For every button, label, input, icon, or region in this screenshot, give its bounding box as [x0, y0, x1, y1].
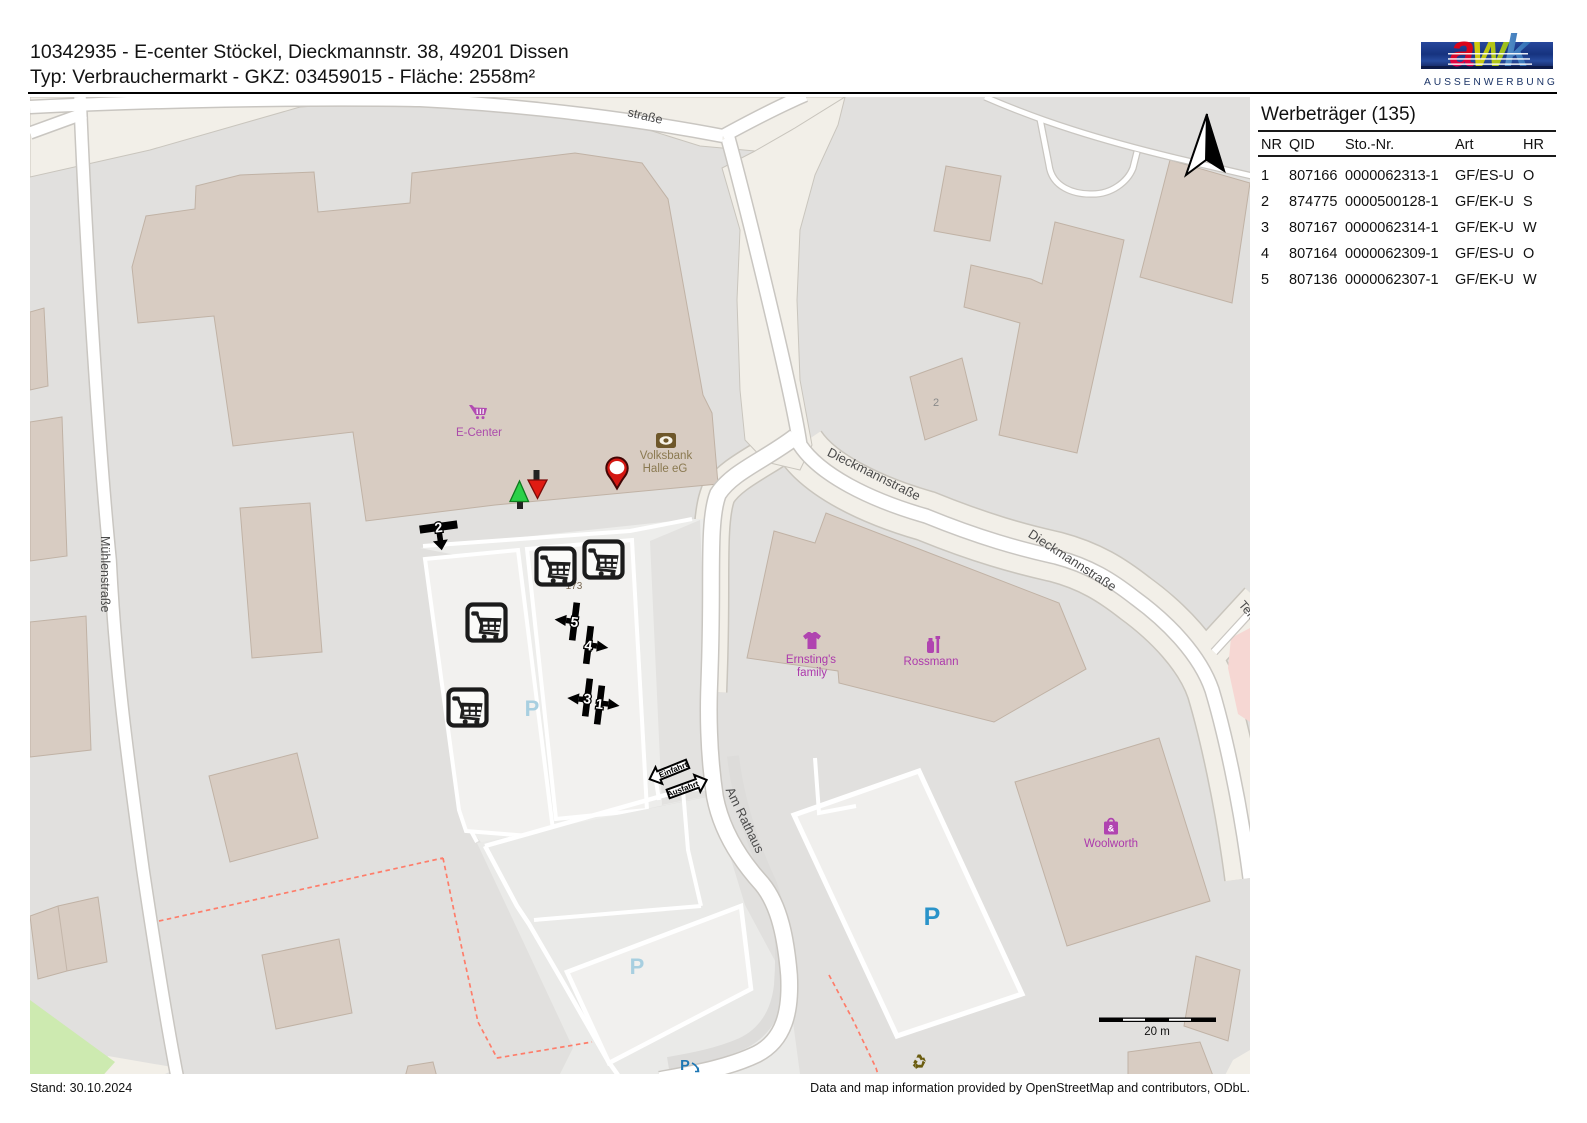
svg-text:20 m: 20 m: [1144, 1026, 1170, 1038]
svg-text:P: P: [630, 954, 645, 979]
svg-text:Woolworth: Woolworth: [1084, 838, 1138, 850]
svg-text:Mühlenstraße: Mühlenstraße: [98, 536, 112, 612]
svg-text:P: P: [924, 903, 941, 931]
svg-text:Rossmann: Rossmann: [904, 656, 959, 668]
svg-text:family: family: [797, 667, 827, 679]
svg-text:&: &: [1108, 824, 1115, 834]
svg-text:awk: awk: [1450, 25, 1531, 76]
svg-text:Volksbank: Volksbank: [640, 450, 693, 462]
svg-text:Ernsting's: Ernsting's: [786, 654, 836, 666]
svg-text:E-Center: E-Center: [456, 427, 502, 439]
svg-text:P: P: [525, 696, 540, 721]
svg-text:Halle eG: Halle eG: [643, 463, 688, 475]
svg-text:AUSSENWERBUNG: AUSSENWERBUNG: [1424, 77, 1558, 88]
svg-text:2: 2: [933, 397, 939, 409]
svg-text:P: P: [680, 1058, 690, 1074]
